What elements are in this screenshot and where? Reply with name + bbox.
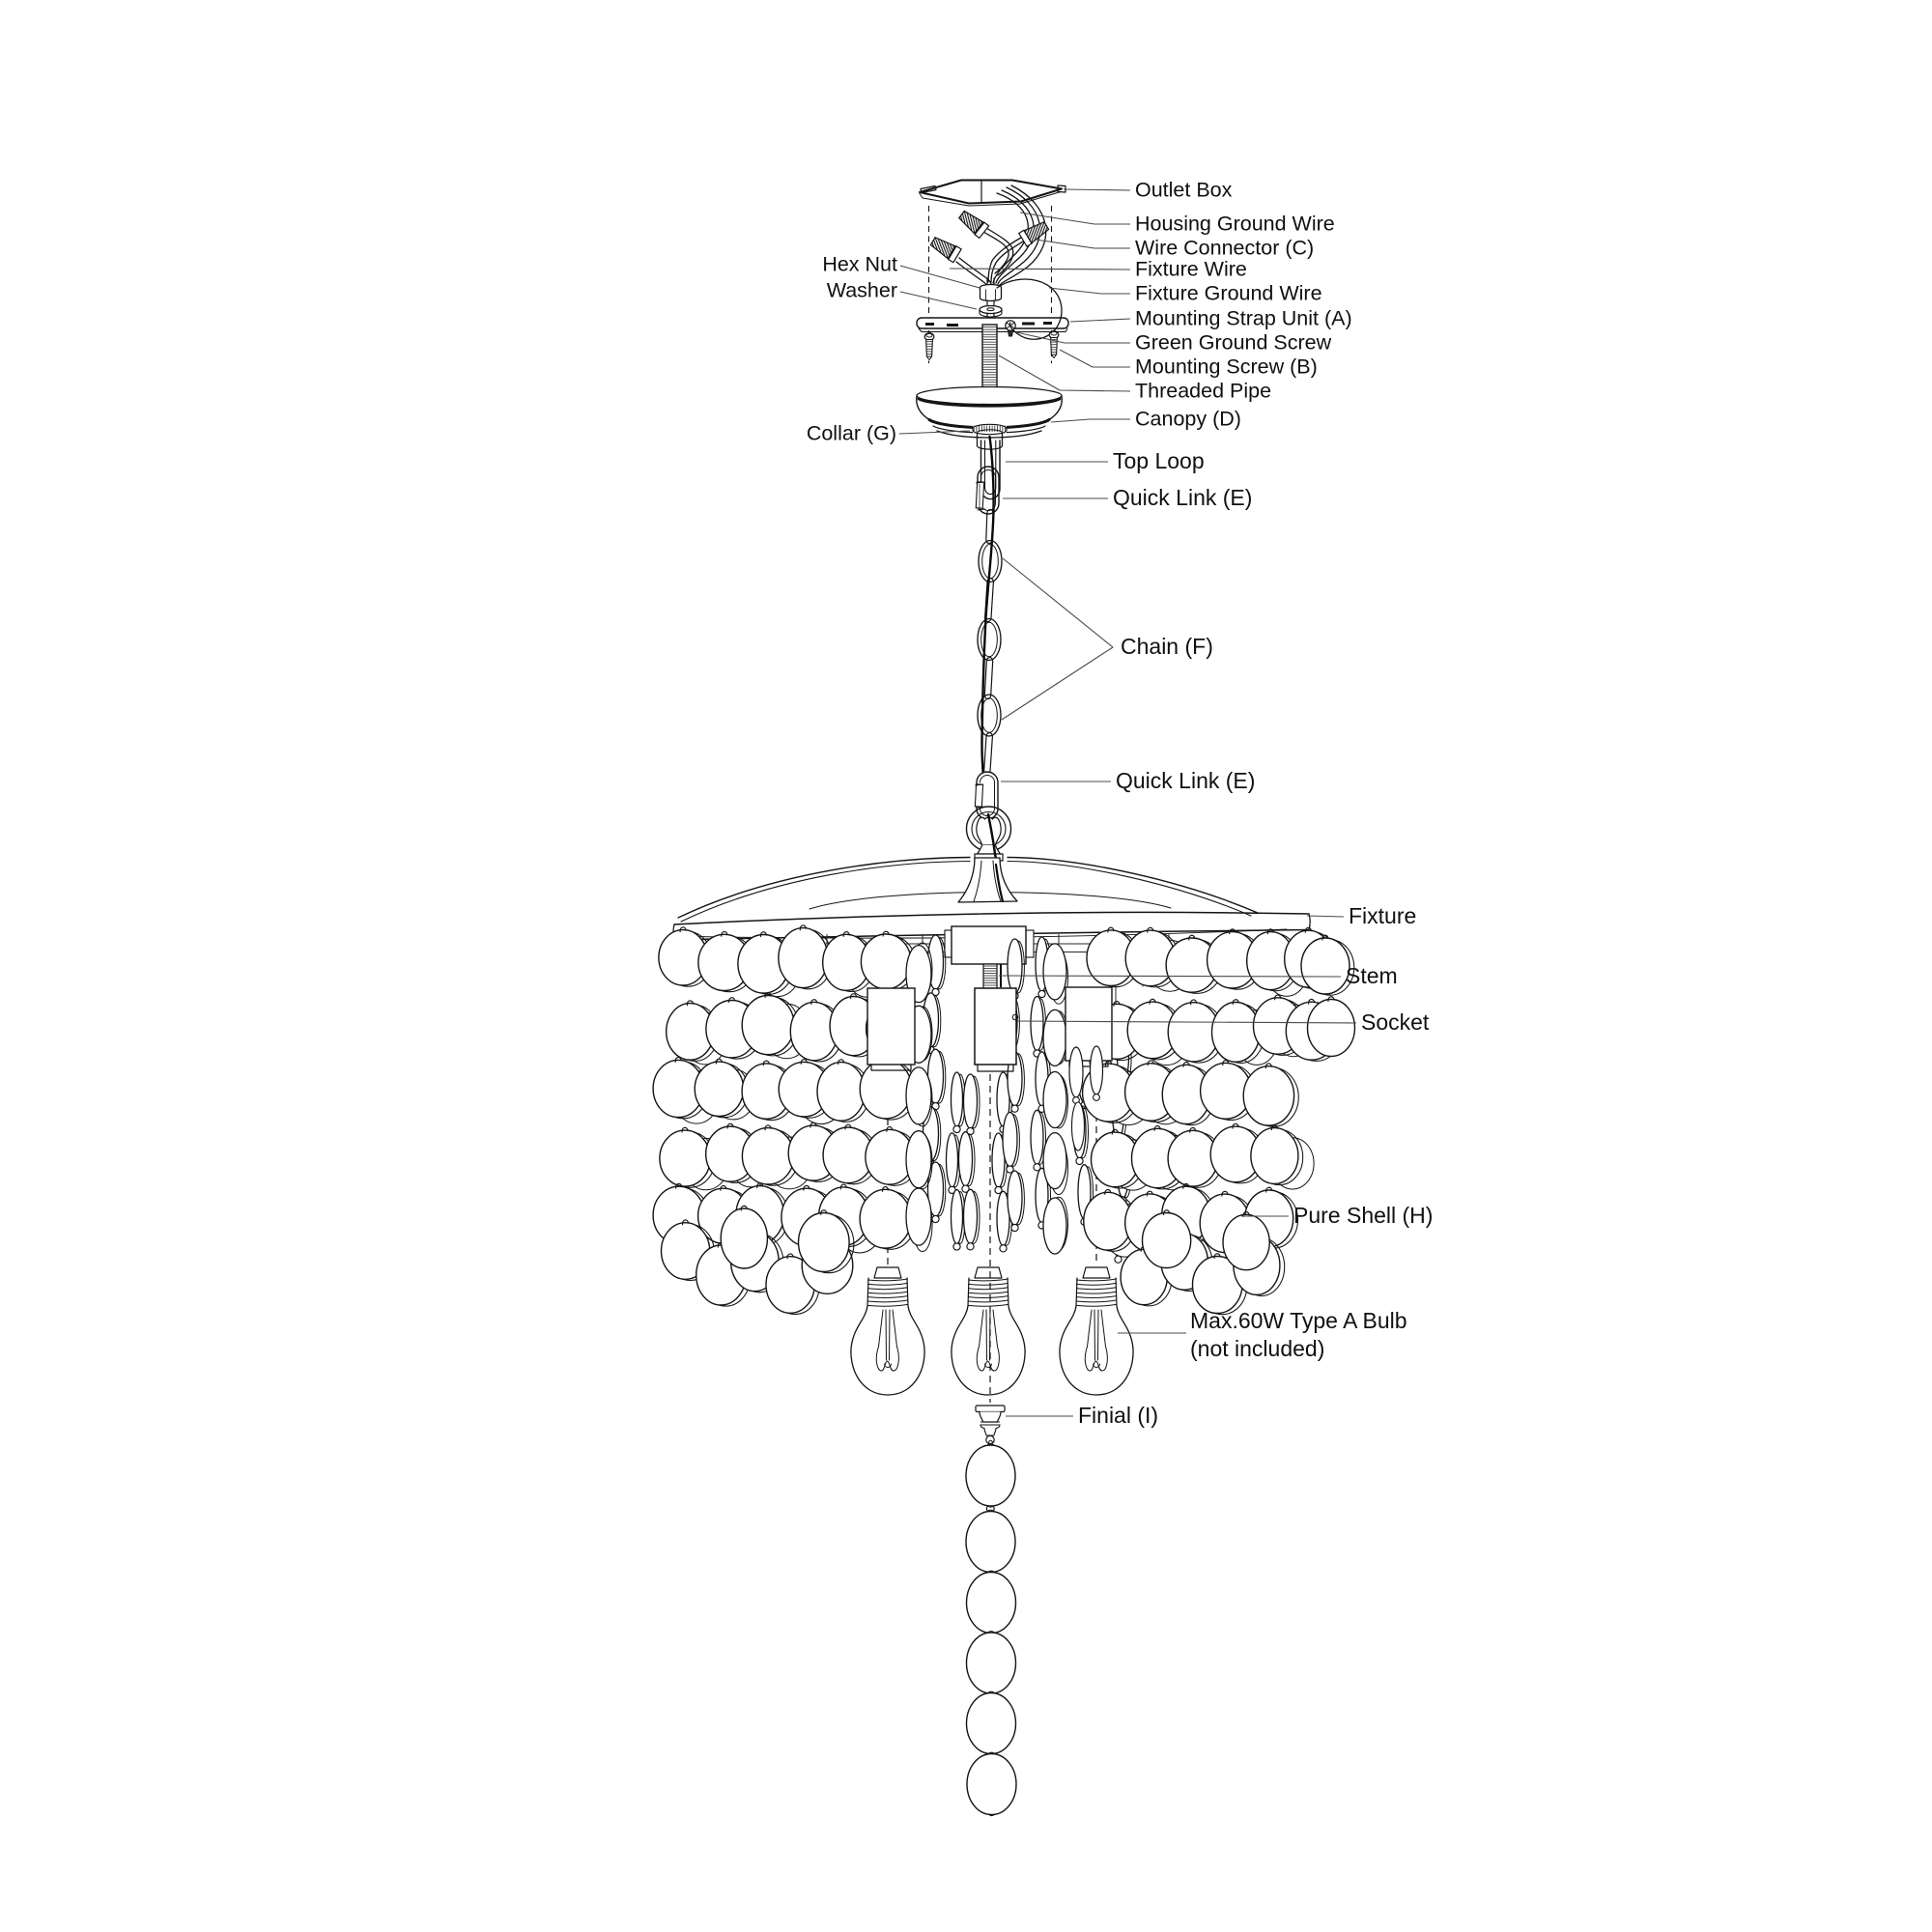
svg-text:Max.60W Type A Bulb: Max.60W Type A Bulb [1190, 1308, 1407, 1333]
svg-text:Fixture Ground Wire: Fixture Ground Wire [1135, 282, 1322, 305]
svg-text:Collar (G): Collar (G) [807, 422, 896, 445]
svg-text:Washer: Washer [827, 279, 897, 302]
svg-text:Chain (F): Chain (F) [1121, 634, 1213, 659]
svg-text:Housing Ground Wire: Housing Ground Wire [1135, 213, 1335, 236]
svg-text:Green Ground Screw: Green Ground Screw [1135, 331, 1332, 355]
svg-text:Outlet Box: Outlet Box [1135, 179, 1233, 202]
svg-text:Canopy (D): Canopy (D) [1135, 408, 1241, 431]
svg-text:Quick Link (E): Quick Link (E) [1113, 485, 1252, 510]
svg-text:Socket: Socket [1361, 1009, 1430, 1035]
svg-text:Hex Nut: Hex Nut [822, 253, 897, 276]
svg-text:Top Loop: Top Loop [1113, 448, 1205, 473]
svg-text:Stem: Stem [1346, 963, 1398, 988]
svg-text:Fixture: Fixture [1349, 903, 1416, 928]
svg-text:Threaded Pipe: Threaded Pipe [1135, 380, 1271, 403]
svg-text:Wire Connector (C): Wire Connector (C) [1135, 237, 1314, 260]
svg-text:Pure Shell (H): Pure Shell (H) [1293, 1203, 1433, 1228]
svg-text:Mounting Screw (B): Mounting Screw (B) [1135, 355, 1318, 379]
svg-text:Fixture Wire: Fixture Wire [1135, 258, 1247, 281]
svg-text:Mounting Strap Unit (A): Mounting Strap Unit (A) [1135, 307, 1352, 330]
svg-text:(not included): (not included) [1190, 1336, 1324, 1361]
svg-text:Finial (I): Finial (I) [1078, 1403, 1158, 1428]
svg-text:Quick Link (E): Quick Link (E) [1116, 768, 1255, 793]
